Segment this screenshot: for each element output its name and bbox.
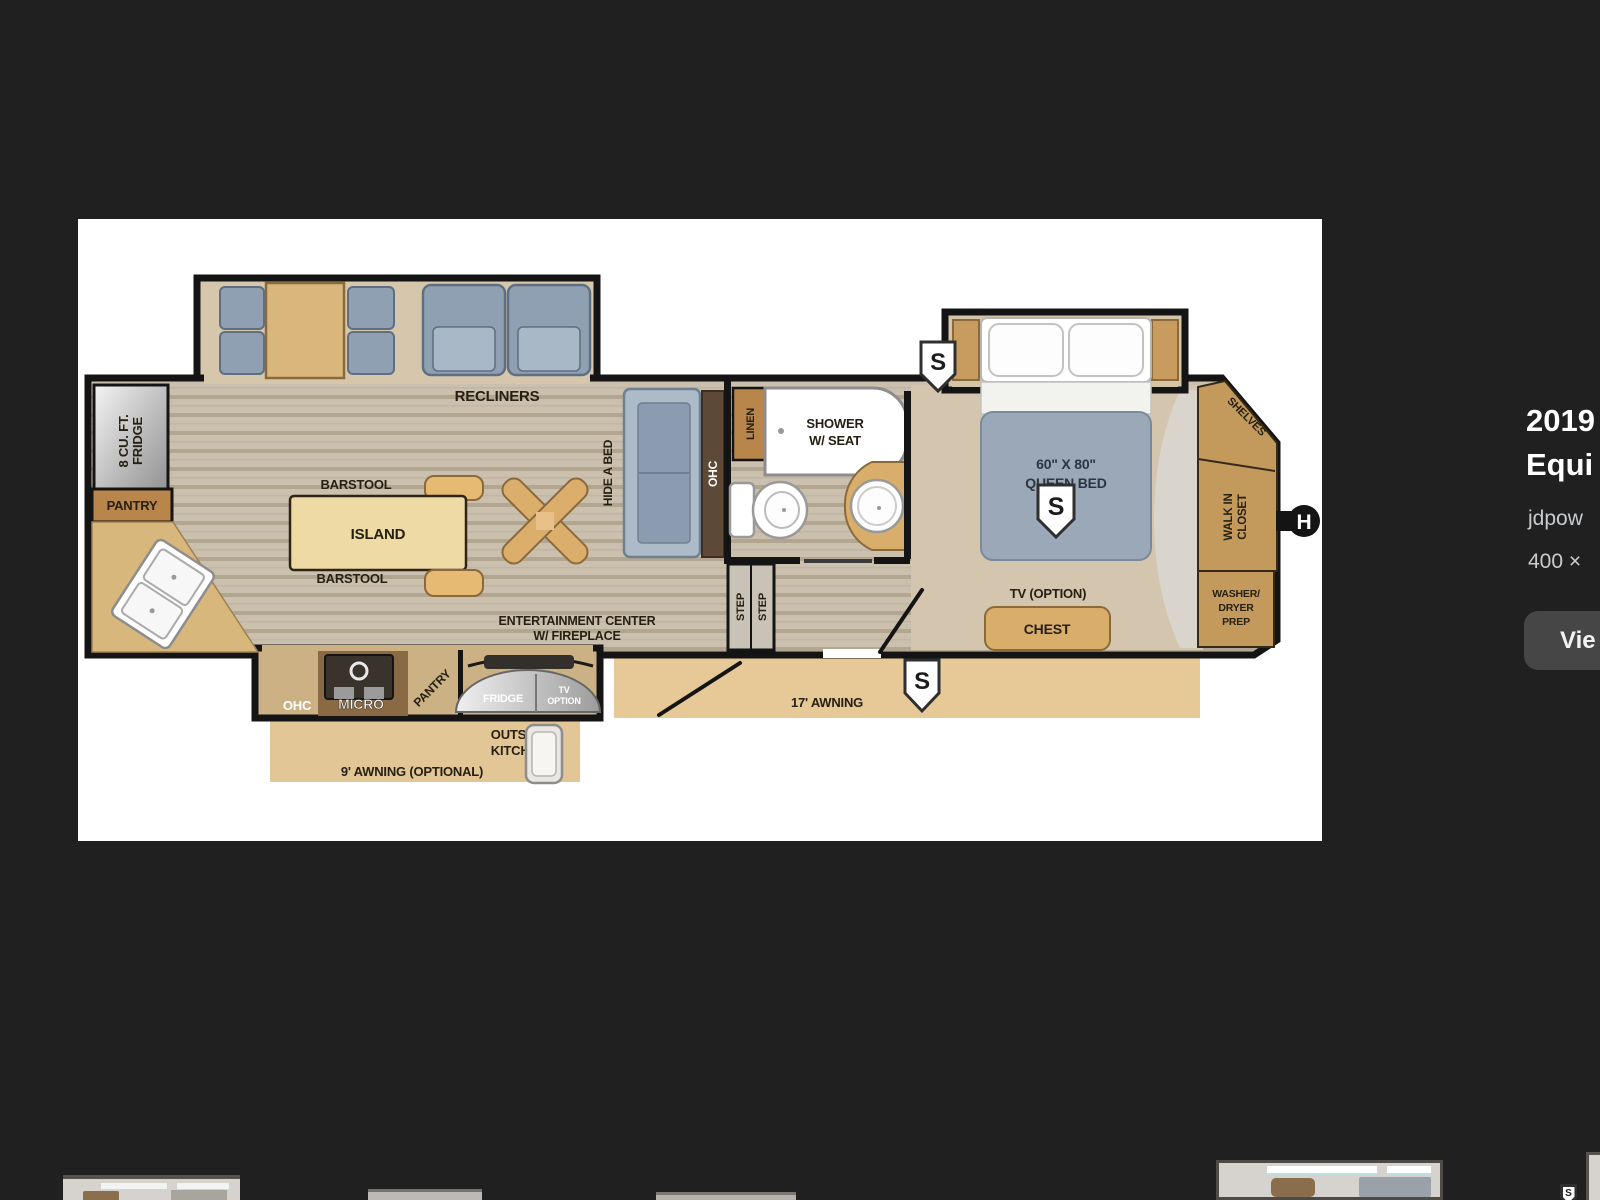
outside-sink bbox=[526, 725, 562, 783]
thumbnail-speaker-icon: S bbox=[1560, 1184, 1577, 1200]
tv-option-label: TV (OPTION) bbox=[1010, 586, 1087, 601]
speaker-label-3: S bbox=[914, 668, 930, 695]
image-title-line2: Equi bbox=[1526, 443, 1600, 487]
outside-tv-label-line2: OPTION bbox=[547, 696, 580, 706]
chest-label: CHEST bbox=[1024, 621, 1071, 637]
bedroom-wall bbox=[904, 391, 911, 559]
shower-label-line1: SHOWER bbox=[806, 416, 864, 431]
barstool-top-label: BARSTOOL bbox=[320, 477, 391, 492]
bed-size-label: 60" X 80" bbox=[1036, 456, 1096, 472]
range-micro bbox=[325, 655, 393, 699]
step-label-1: STEP bbox=[735, 593, 747, 621]
closet-label-line2: CLOSET bbox=[1237, 494, 1249, 540]
barstool-bottom bbox=[425, 570, 483, 596]
image-viewer-page: { "sidebar": { "title_line1": "2019", "t… bbox=[0, 0, 1600, 1200]
view-button-label: Vie bbox=[1560, 627, 1596, 655]
outside-fridge-label: FRIDGE bbox=[483, 693, 523, 705]
hide-a-bed-label: HIDE A BED bbox=[601, 439, 615, 506]
toilet bbox=[730, 482, 807, 538]
awning-17-label: 17' AWNING bbox=[791, 695, 863, 710]
pantry-label: PANTRY bbox=[107, 498, 158, 513]
island-label: ISLAND bbox=[351, 526, 406, 543]
micro-label: MICRO bbox=[338, 696, 384, 712]
image-title: 2019 Equi bbox=[1526, 399, 1600, 487]
thumbnail-4-window2 bbox=[1387, 1166, 1431, 1175]
outside-tv-label-line1: TV bbox=[558, 685, 569, 695]
hide-a-bed-sofa bbox=[624, 389, 700, 557]
pocket-door bbox=[804, 559, 872, 563]
fridge-label-line2: FRIDGE bbox=[130, 417, 145, 465]
floorplan-drawing: 8 CU. FT. FRIDGE PANTRY RECLINERS BARSTO… bbox=[78, 219, 1322, 841]
thumbnail-floorplan-5[interactable] bbox=[1586, 1152, 1600, 1200]
bath-wall-left bbox=[724, 381, 731, 563]
image-source: jdpow bbox=[1528, 507, 1583, 531]
view-button[interactable]: Vie bbox=[1524, 611, 1600, 670]
hitch-label: H bbox=[1297, 511, 1312, 534]
shower-label-line2: W/ SEAT bbox=[809, 433, 861, 448]
thumbnail-floorplan-4[interactable] bbox=[1216, 1160, 1443, 1200]
thumbnail-4-chair bbox=[1271, 1178, 1315, 1197]
thumbnail-1-sofa bbox=[171, 1190, 227, 1200]
thumbnail-floorplan-2[interactable] bbox=[368, 1189, 482, 1200]
thumbnail-floorplan-1[interactable] bbox=[63, 1175, 240, 1200]
thumbnail-1-window bbox=[101, 1183, 167, 1189]
barstool-bottom-label: BARSTOOL bbox=[316, 571, 387, 586]
washer-label-line2: DRYER bbox=[1218, 602, 1254, 614]
hitch-icon: H bbox=[1276, 505, 1320, 537]
entertainment-label-line1: ENTERTAINMENT CENTER bbox=[499, 614, 656, 628]
thumbnail-speaker-label: S bbox=[1563, 1187, 1575, 1200]
speaker-label-1: S bbox=[930, 349, 946, 376]
entertainment-label-line2: W/ FIREPLACE bbox=[533, 629, 620, 643]
washer-label-line3: PREP bbox=[1222, 616, 1250, 628]
recliners-label: RECLINERS bbox=[455, 388, 540, 405]
speaker-label-2: S bbox=[1048, 493, 1064, 521]
fridge-label-line1: 8 CU. FT. bbox=[116, 414, 131, 467]
thumbnail-floorplan-3[interactable] bbox=[656, 1192, 796, 1200]
fridge-label: 8 CU. FT. FRIDGE bbox=[116, 414, 145, 467]
image-dimensions: 400 × bbox=[1528, 550, 1581, 574]
linen-label: LINEN bbox=[745, 408, 757, 440]
kitchen-slideout-opening bbox=[262, 645, 593, 655]
vanity-sink bbox=[845, 462, 910, 550]
thumbnail-4-window bbox=[1267, 1166, 1377, 1175]
entry-door-opening bbox=[823, 649, 881, 658]
thumbnail-4-sofa bbox=[1359, 1177, 1431, 1197]
step-label-2: STEP bbox=[757, 593, 769, 621]
main-image-floorplan[interactable]: 8 CU. FT. FRIDGE PANTRY RECLINERS BARSTO… bbox=[78, 219, 1322, 841]
shower-drain bbox=[778, 428, 784, 434]
washer-label-line1: WASHER/ bbox=[1212, 588, 1260, 600]
closet-label-line1: WALK IN bbox=[1223, 493, 1235, 540]
ohc-label: OHC bbox=[706, 460, 720, 487]
awning-9-label: 9' AWNING (OPTIONAL) bbox=[341, 764, 483, 779]
image-title-line1: 2019 bbox=[1526, 399, 1600, 443]
thumbnail-1-window2 bbox=[177, 1183, 229, 1189]
ohc-kitchen-label: OHC bbox=[283, 698, 312, 713]
outside-tv bbox=[484, 655, 574, 669]
thumbnail-1-chair bbox=[83, 1191, 119, 1200]
